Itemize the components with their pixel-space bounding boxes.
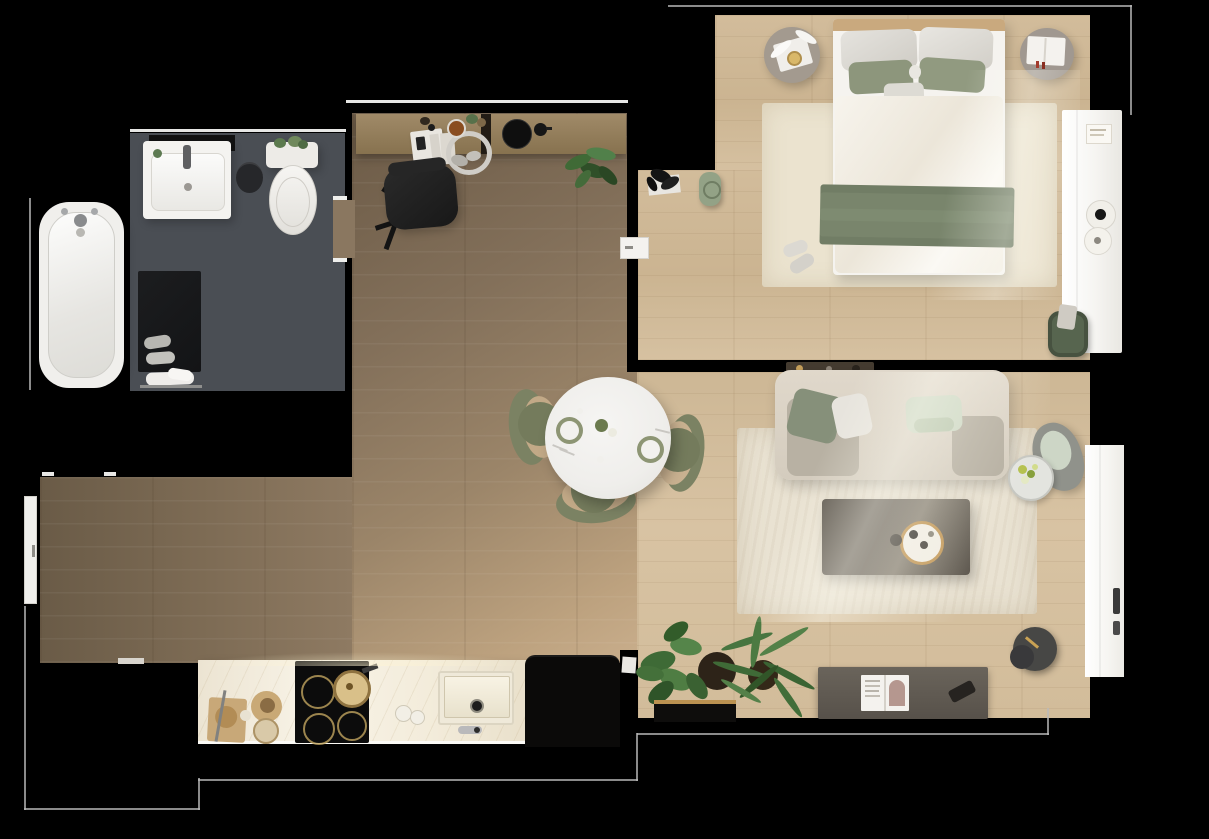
burner: [303, 713, 335, 745]
bathtub-handle: [61, 208, 68, 215]
centerpiece: [595, 419, 608, 432]
sink-drain: [470, 699, 484, 713]
magazine-line: [865, 695, 880, 697]
toilet-plant: [274, 138, 286, 148]
bathtub: [39, 202, 124, 388]
toilet-seat-line: [276, 177, 310, 227]
bathtub-drain: [76, 228, 85, 237]
small-cup: [240, 710, 251, 721]
round-box: [1084, 227, 1112, 255]
bedroom-door: [620, 237, 649, 259]
exterior-outline: [636, 733, 638, 781]
frond: [758, 624, 810, 658]
magazine-photo: [889, 680, 905, 706]
exterior-outline: [1130, 5, 1132, 115]
round-box-center: [1094, 237, 1101, 244]
floorplan-stage: [0, 0, 1209, 839]
slipper: [146, 351, 176, 365]
door-threshold: [118, 658, 144, 664]
tub-alcove-line: [29, 198, 31, 390]
towel-rail: [140, 385, 202, 388]
frying-pan: [333, 670, 371, 708]
nightstand-left: [764, 27, 820, 83]
bathtub-handle: [91, 208, 98, 215]
window-handle: [1113, 621, 1120, 635]
bench: [654, 700, 736, 722]
desk-item: [477, 118, 486, 127]
hall-floor: [40, 477, 352, 663]
yoga-mat: [699, 172, 721, 206]
teapot: [253, 718, 279, 744]
sink-drain: [184, 183, 192, 191]
flower: [1021, 476, 1029, 484]
cutting-board: [207, 697, 247, 743]
exterior-outline: [24, 606, 26, 810]
faucet-head: [474, 727, 480, 733]
espresso-cup: [909, 530, 918, 539]
bathroom-door-opening: [333, 200, 355, 258]
exterior-outline: [668, 5, 1132, 7]
espresso-cup: [920, 541, 928, 549]
serving-tray: [900, 521, 944, 565]
small-bowl: [608, 428, 617, 437]
desk-item: [428, 124, 435, 131]
desk-plant: [552, 142, 626, 202]
cup-on-bed: [909, 65, 921, 79]
exterior-outline: [1047, 708, 1049, 735]
flower-side-table: [1008, 455, 1054, 501]
chair-leg: [384, 224, 398, 250]
exterior-outline: [198, 778, 200, 810]
label-card: [1086, 124, 1112, 144]
toilet-plant: [298, 140, 308, 149]
entry-door: [24, 496, 37, 604]
study-window-line: [346, 100, 628, 103]
bookmark: [1042, 62, 1045, 69]
waste-bin: [236, 162, 263, 193]
pillow-sage: [918, 57, 986, 94]
magazine-line: [865, 680, 880, 682]
nightstand-right: [1020, 28, 1074, 80]
napkin: [577, 408, 583, 414]
vanity-sink: [143, 141, 231, 219]
office-chair: [372, 158, 472, 248]
magazine: [861, 675, 909, 711]
round-box-center: [1095, 209, 1106, 220]
pan-lid-knob: [346, 683, 353, 690]
flower: [1032, 464, 1038, 470]
burner: [337, 711, 367, 741]
bathtub-basin: [48, 212, 115, 378]
card-line: [1090, 129, 1106, 131]
sofa-pillow-white: [830, 392, 874, 441]
spice-jar: [260, 698, 275, 713]
tray-knob: [928, 531, 934, 537]
sink-faucet: [183, 145, 191, 169]
soap-bottle: [153, 149, 162, 158]
flower: [1018, 465, 1027, 474]
door-handle: [32, 545, 35, 557]
wall-tick: [104, 472, 116, 476]
throw-blanket: [819, 184, 1014, 247]
speaker: [502, 119, 532, 149]
mat-spiral: [703, 181, 721, 199]
faucet: [458, 726, 482, 734]
phone: [416, 136, 427, 150]
door-jamb: [333, 196, 347, 200]
tray-shadow-dot: [890, 534, 902, 546]
exterior-outline: [198, 779, 638, 781]
balcony-window: [1085, 445, 1124, 677]
toilet: [264, 141, 320, 235]
kitchen-sink: [438, 671, 514, 725]
sofa: [775, 370, 1009, 480]
storage-jar: [410, 710, 425, 725]
wall-tick: [42, 472, 54, 476]
magazine-line: [865, 690, 879, 692]
desk-item: [420, 117, 430, 125]
burner: [301, 675, 335, 709]
plate: [641, 440, 660, 459]
tea-cup: [447, 119, 466, 138]
magazine-line: [865, 685, 880, 687]
plate: [560, 421, 579, 440]
basket-towel: [1056, 304, 1077, 330]
sofa-pillow-fold: [914, 417, 955, 433]
double-bed: [833, 19, 1005, 275]
leaf: [572, 167, 594, 190]
candle: [787, 51, 802, 66]
lamp-shade: [1010, 645, 1034, 669]
door-handle: [625, 246, 633, 249]
window-seam: [1099, 445, 1101, 677]
exterior-outline: [637, 733, 1049, 735]
magazine-crease: [884, 675, 886, 711]
window-handle: [1113, 588, 1120, 614]
refrigerator: [525, 655, 620, 747]
bookmark: [1036, 61, 1039, 68]
card-line: [1090, 134, 1104, 136]
mug-handle: [546, 127, 552, 130]
wall-frame-item: [621, 657, 636, 674]
door-jamb: [333, 258, 347, 262]
napkin: [597, 456, 604, 463]
dried-plant-decor: [642, 166, 686, 200]
exterior-outline: [24, 808, 200, 810]
bathtub-faucet: [74, 214, 87, 227]
round-box: [1086, 200, 1116, 230]
bathroom-window-line: [130, 129, 346, 132]
bedroom-left-wall: [627, 10, 638, 372]
